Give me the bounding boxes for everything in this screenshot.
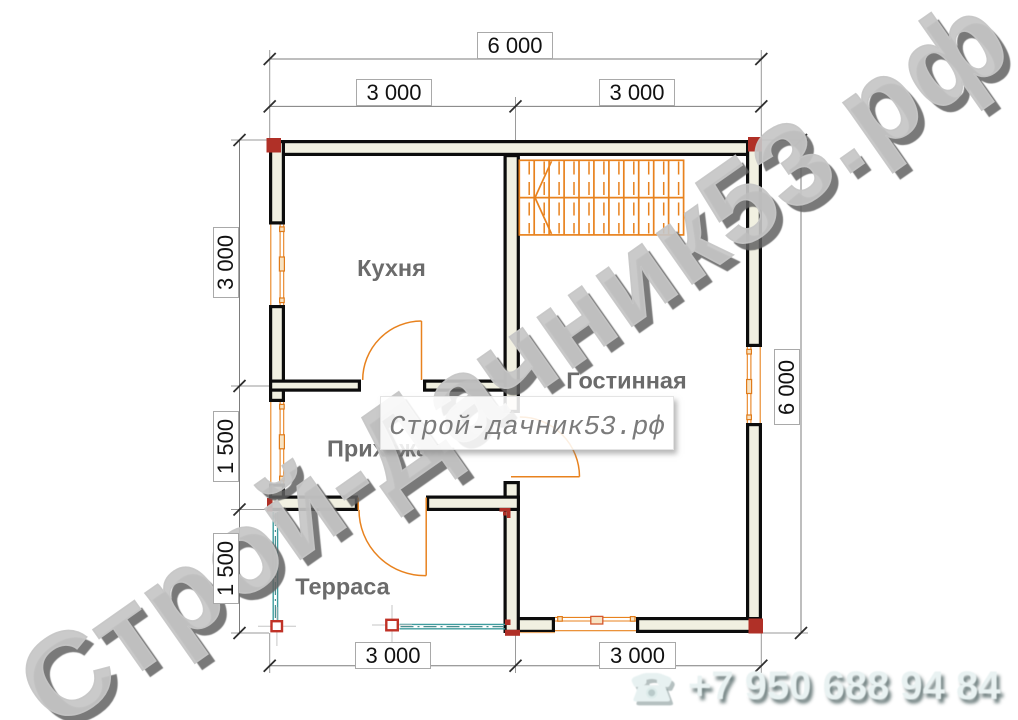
svg-text:Кухня: Кухня — [357, 255, 426, 281]
